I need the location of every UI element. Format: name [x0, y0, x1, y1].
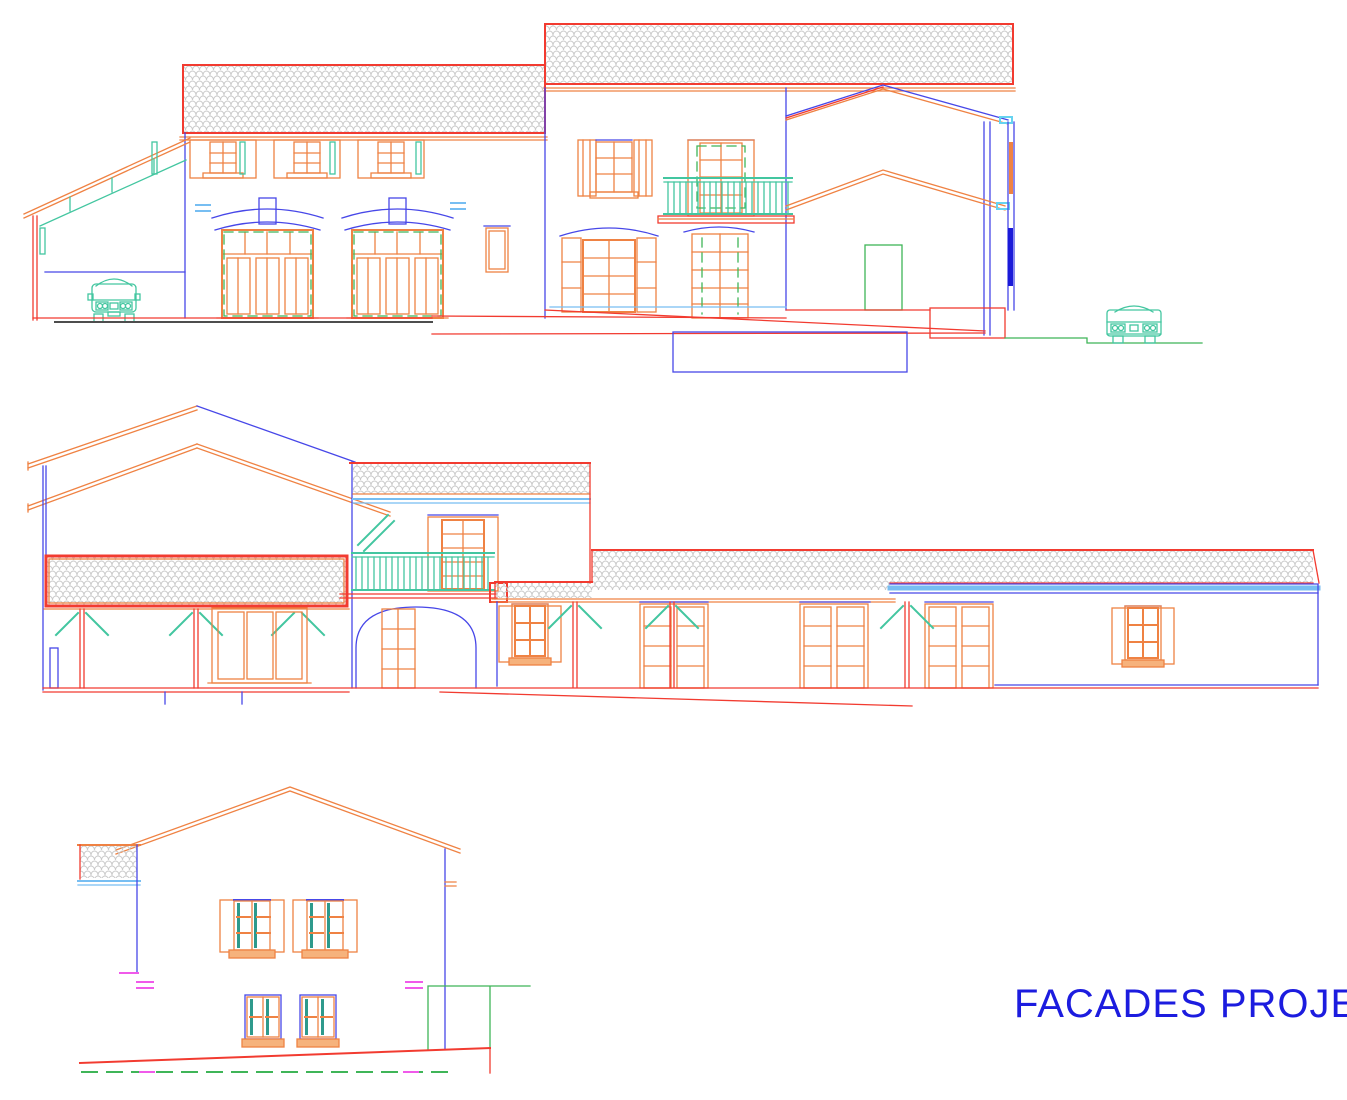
window-shuttered — [190, 140, 256, 178]
top-rear-gables — [786, 85, 1014, 310]
top-door-below-balcony — [684, 227, 754, 318]
window-shuttered — [1112, 606, 1174, 667]
bot-walls — [120, 845, 456, 1049]
rear-door — [865, 245, 902, 310]
bot-roof — [78, 787, 460, 885]
car-icon — [88, 279, 140, 322]
window-shuttered — [499, 604, 561, 665]
mid-carport — [44, 556, 349, 688]
french-door — [800, 604, 868, 688]
top-center-upper-window — [578, 140, 652, 198]
french-door — [925, 604, 993, 688]
window-shuttered — [220, 900, 284, 958]
drawing-title: FACADES PROJET — [1014, 982, 1347, 1027]
window-small — [242, 995, 284, 1047]
bot-windows — [220, 900, 357, 1047]
facades-drawing — [0, 0, 1347, 1100]
top-ground — [33, 307, 1202, 372]
french-door-arched — [212, 198, 323, 318]
downspout — [1008, 122, 1014, 310]
window-shuttered — [293, 900, 357, 958]
mid-wing — [492, 550, 1319, 688]
top-balcony — [658, 140, 794, 223]
balcony-railing — [352, 553, 494, 590]
elevation-bottom — [78, 787, 530, 1073]
mid-ground — [43, 685, 1318, 706]
balcony-railing — [664, 178, 792, 214]
top-upper-windows — [152, 140, 465, 211]
top-french-doors — [212, 198, 510, 318]
elevation-middle — [28, 406, 1319, 706]
arched-opening — [356, 607, 476, 688]
elevation-top — [24, 24, 1202, 372]
window-small — [297, 995, 339, 1047]
car-icon — [1107, 306, 1161, 343]
mid-two-story-block — [340, 462, 590, 688]
mid-gable-roof — [28, 406, 390, 516]
top-shuttered-window-low — [560, 228, 658, 312]
top-carport — [24, 138, 190, 320]
top-roof-main — [180, 24, 1015, 140]
window-shuttered — [358, 140, 424, 178]
french-door-arched — [342, 198, 453, 318]
sliding-glass-door — [208, 608, 311, 683]
porch-posts — [549, 602, 933, 687]
